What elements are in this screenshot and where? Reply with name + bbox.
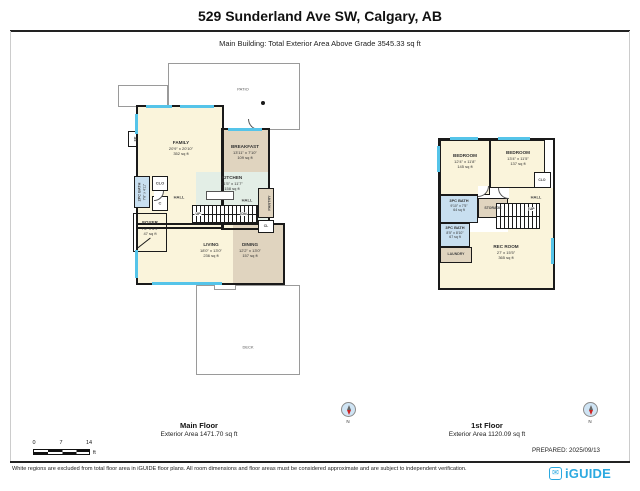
clo-first-label: CLO <box>538 178 545 182</box>
window <box>135 250 138 278</box>
upper-hall-label: HALL <box>531 195 542 200</box>
bedroom1-label: BEDROOM 12'4" x 11'8" 145 sq ft <box>453 153 477 169</box>
family-room-label: FAMILY 20'9" x 20'10" 352 sq ft <box>169 140 193 156</box>
pantry-label: PANTRY <box>267 195 271 210</box>
compass-needle-north <box>589 410 593 415</box>
stairs-main <box>192 205 258 223</box>
disclaimer-text: White regions are excluded from total fl… <box>12 466 522 472</box>
iguide-logo-text: iGUIDE <box>565 466 611 481</box>
page-title: 529 Sunderland Ave SW, Calgary, AB <box>0 8 640 24</box>
cl-label: CL <box>264 224 269 228</box>
storage-label: STORAGE <box>484 206 501 210</box>
stairs-up-label: UP <box>195 212 202 216</box>
living-label: LIVING 18'0" x 13'0" 236 sq ft <box>200 242 222 258</box>
compass-n-label: N <box>588 419 591 424</box>
first-floor-name: 1st Floor <box>449 421 525 430</box>
deck-outline <box>196 285 300 375</box>
bedroom2-label: BEDROOM 13'4" x 11'5" 137 sq ft <box>506 150 530 166</box>
window <box>152 282 222 285</box>
iguide-logo-icon: ✉ <box>549 467 562 480</box>
stairs-dn-label: DN <box>240 212 247 216</box>
prepared-date: PREPARED: 2025/09/13 <box>420 447 600 454</box>
laundry-label: LAUNDRY <box>448 252 465 256</box>
patio-outline-strip <box>118 85 168 107</box>
patio-label: PATIO <box>237 87 248 92</box>
dining-label: DINING 12'2" x 13'0" 157 sq ft <box>239 242 261 258</box>
window <box>135 114 138 134</box>
window <box>146 105 172 108</box>
bath-lower-label: 3PC BATH 8'5" x 8'10" 67 sq ft <box>445 226 464 240</box>
scale-bar <box>33 449 90 455</box>
compass-needle-north <box>347 410 351 415</box>
building-subtitle: Main Building: Total Exterior Area Above… <box>0 39 640 48</box>
iguide-logo: ✉ iGUIDE <box>549 466 611 481</box>
frame-left <box>10 31 11 461</box>
hall-label-2: HALL <box>242 198 253 203</box>
deck-label: DECK <box>242 345 253 350</box>
scale-tick-7: 7 <box>59 440 62 446</box>
scale-tick-14: 14 <box>86 440 92 446</box>
clo-label: CLO <box>156 181 164 186</box>
scale-bar-row <box>34 452 89 454</box>
window <box>228 128 262 131</box>
hall-label: HALL <box>174 195 185 200</box>
window <box>551 238 554 264</box>
compass-n-label: N <box>346 419 349 424</box>
first-floor-caption: 1st Floor Exterior Area 1120.09 sq ft <box>449 421 525 438</box>
foyer-label: FOYER 7'6" x 6'9" 47 sq ft <box>141 220 159 236</box>
window <box>180 105 214 108</box>
compass-needle-south <box>589 405 593 410</box>
window <box>450 137 478 140</box>
c-label: C <box>159 201 162 206</box>
powder-room-label: 2PC BATH 7'8" x 4'11" <box>138 183 147 202</box>
header-rule <box>10 30 630 32</box>
scale-unit: ft <box>93 450 96 456</box>
kitchen-label: KITCHEN 21'5" x 11'7" 158 sq ft <box>221 175 243 191</box>
breakfast-label: BREAKFAST 13'11" x 7'10" 109 sq ft <box>231 144 259 160</box>
floor-plan-page: 529 Sunderland Ave SW, Calgary, AB Main … <box>0 0 640 491</box>
kitchen-island <box>206 191 234 200</box>
first-floor-area: Exterior Area 1120.09 sq ft <box>449 431 525 438</box>
patio-post-dot <box>261 101 265 105</box>
rec-room-label: REC ROOM 27' x 15'5" 365 sq ft <box>493 244 518 260</box>
frame-right <box>629 31 630 461</box>
window <box>498 137 530 140</box>
bath-upper-label: 3PC BATH 9'10" x 7'5" 64 sq ft <box>449 199 468 213</box>
stairs-up-label-first: UP <box>529 207 536 211</box>
main-floor-area: Exterior Area 1471.70 sq ft <box>161 431 238 438</box>
main-floor-caption: Main Floor Exterior Area 1471.70 sq ft <box>161 421 238 438</box>
compass-needle-south <box>347 405 351 410</box>
fp-label: FP <box>133 137 137 142</box>
stair-run-lower <box>497 216 539 229</box>
scale-tick-0: 0 <box>32 440 35 446</box>
north-compass-icon <box>583 402 598 417</box>
north-compass-icon <box>341 402 356 417</box>
footer-rule <box>10 461 630 463</box>
window <box>437 146 440 172</box>
main-floor-name: Main Floor <box>161 421 238 430</box>
